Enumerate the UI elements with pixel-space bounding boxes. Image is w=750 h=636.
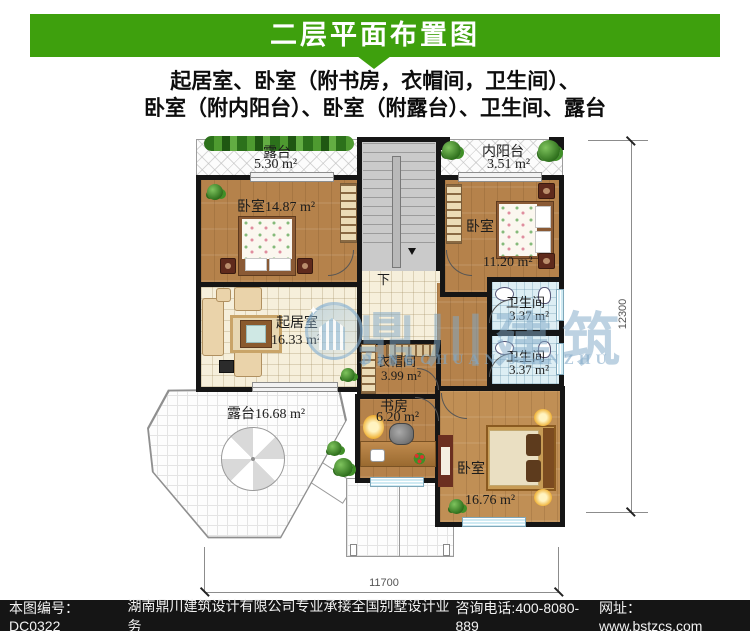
label-living-area: 16.33 m² <box>271 333 321 349</box>
wardrobe <box>340 183 357 243</box>
label-cloakroom-area: 3.99 m² <box>381 368 421 384</box>
dim-ext <box>204 547 205 593</box>
plant-icon <box>207 184 223 200</box>
tv-unit <box>219 360 234 373</box>
terrace-door <box>252 382 338 392</box>
window <box>556 289 564 321</box>
dim-line-bottom <box>205 592 559 593</box>
window <box>462 517 526 527</box>
footer-phone: 咨询电话:400-8080-889 <box>455 598 599 634</box>
dim-ext <box>586 512 648 513</box>
nightstand <box>297 258 313 274</box>
rail-post <box>350 544 357 556</box>
pillow <box>245 258 267 271</box>
pillow <box>535 206 551 228</box>
table-glass <box>246 325 266 343</box>
terrace-door <box>250 172 334 182</box>
label-bath-upper-area: 3.37 m² <box>509 308 549 324</box>
side-table <box>216 288 231 302</box>
dim-right-value: 12300 <box>617 292 629 336</box>
umbrella-icon <box>221 427 285 491</box>
plant-icon <box>442 141 461 160</box>
label-bedroom-right-area: 11.20 m² <box>483 255 533 271</box>
floor-plan: 露台 5.30 m² 卧室14.87 m² 内阳台 3.51 m² 卧室 11.… <box>0 0 750 600</box>
dim-ext <box>588 140 648 141</box>
dim-bottom-value: 11700 <box>360 577 408 589</box>
label-bedroom-bottom: 卧室 <box>457 458 485 478</box>
nightstand <box>538 183 555 199</box>
footer-drawing-number: 本图编号：DC0322 <box>9 598 127 634</box>
plant-icon <box>538 140 560 162</box>
dim-ext <box>558 547 559 593</box>
pillow <box>535 231 551 253</box>
label-bedroom-left: 卧室14.87 m² <box>237 196 315 216</box>
window <box>370 477 424 487</box>
label-bedroom-bottom-area: 16.76 m² <box>465 493 515 509</box>
footer-website: 网址：www.bstzcs.com <box>599 598 741 634</box>
flower-icon <box>413 452 426 465</box>
label-study-area: 6.20 m² <box>376 410 419 426</box>
stair-rail <box>392 156 401 268</box>
bed-mattress <box>499 204 537 256</box>
desk-chair <box>389 423 414 445</box>
pillow <box>269 258 291 271</box>
label-living: 起居室 <box>276 312 318 332</box>
desk-accessory <box>370 449 385 462</box>
plant-icon <box>334 458 353 477</box>
bed-mattress <box>242 219 292 259</box>
pillow <box>526 460 541 482</box>
plant-icon <box>341 368 355 382</box>
closet <box>361 344 376 394</box>
label-terrace-octagon: 露台16.68 m² <box>227 403 305 423</box>
label-bath-lower-area: 3.37 m² <box>509 362 549 378</box>
footer-company: 湖南鼎川建筑设计有限公司专业承接全国别墅设计业务 <box>127 596 455 636</box>
pillow <box>526 434 541 456</box>
label-inner-balcony-area: 3.51 m² <box>487 157 530 173</box>
headboard <box>543 428 554 488</box>
armchair <box>234 287 262 311</box>
label-terrace-top-area: 5.30 m² <box>254 157 297 173</box>
lamp-glow <box>534 409 552 426</box>
wardrobe <box>446 184 462 244</box>
armchair <box>234 351 262 377</box>
dim-line-right <box>631 141 632 513</box>
label-stair-down: 下 <box>377 269 390 288</box>
nightstand <box>220 258 236 274</box>
balcony-door <box>458 172 542 182</box>
plant-icon <box>449 499 464 514</box>
rail-post <box>443 544 450 556</box>
lamp-glow <box>534 489 552 506</box>
dresser-mirror <box>441 447 450 475</box>
plant-icon <box>327 441 342 456</box>
stair-down-arrow-icon <box>408 248 416 255</box>
footer-bar: 本图编号：DC0322 湖南鼎川建筑设计有限公司专业承接全国别墅设计业务 咨询电… <box>0 600 750 631</box>
nightstand <box>538 253 555 269</box>
window <box>556 343 564 375</box>
label-bedroom-right: 卧室 <box>466 216 494 236</box>
sofa <box>202 298 224 356</box>
balcony-divider <box>399 478 400 557</box>
